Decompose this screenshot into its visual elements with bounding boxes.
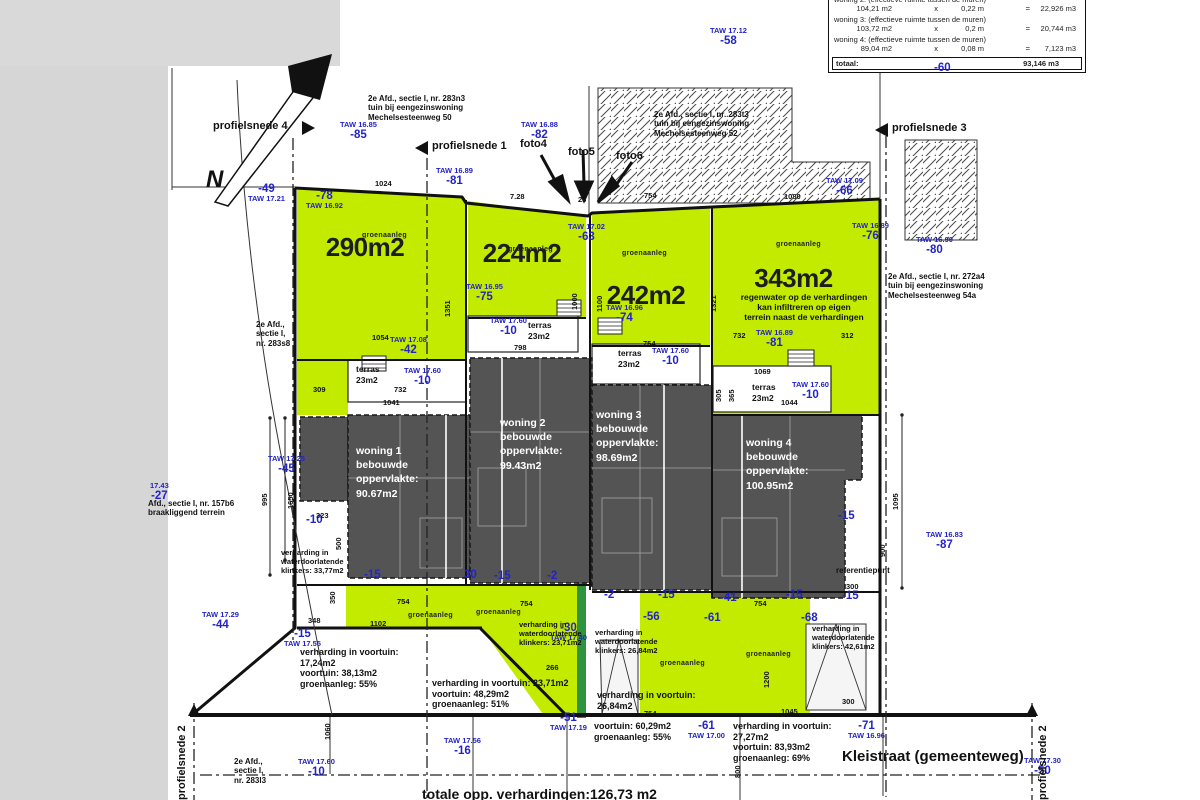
note-text: Afd., sectie I, nr. 157b6 braakliggend t… (148, 499, 276, 518)
taw-elevation-label: -71TAW 16.96 (848, 720, 885, 740)
taw-elevation-label: -78TAW 16.92 (306, 190, 343, 210)
dimension-label: 800 (733, 765, 742, 778)
dimension-label: 23 (578, 195, 586, 204)
table-row-label: woning 3: (effectieve ruimte tussen de m… (832, 14, 1082, 24)
terrace-label: terras 23m2 (528, 320, 552, 341)
terrace-label: terras 23m2 (618, 348, 642, 369)
groenaanleg-label: groenaanleg (622, 250, 667, 257)
dimension-label: 348 (308, 616, 321, 625)
taw-value: TAW 17.60 (404, 367, 441, 375)
dimension-label: 1351 (443, 300, 452, 317)
taw-elevation-label: TAW 17.56-16 (444, 737, 481, 757)
dimension-label: 754 (397, 597, 410, 606)
note-text: N (206, 166, 236, 194)
plot-area-label: 224m2 (458, 238, 586, 269)
dimension-label: 1650 (286, 492, 295, 509)
table-cell: 0,2 m (938, 24, 984, 33)
taw-elevation-label: TAW 16.95-75 (466, 283, 503, 303)
level-label: -15 (838, 510, 855, 522)
taw-elevation-label: TAW 17.12-58 (710, 27, 747, 47)
dimension-label: 300 (846, 582, 859, 591)
note-text: profielsnede 1 (432, 140, 524, 153)
table-row-label: woning 4: (effectieve ruimte tussen de m… (832, 34, 1082, 44)
dimension-label: 754 (520, 599, 533, 608)
table-cell: = (984, 44, 1030, 53)
level-value: -10 (652, 355, 689, 367)
table-row: 89,04 m2x0,08 m=7,123 m3 (832, 44, 1082, 54)
level-value: -10 (404, 375, 441, 387)
level-value: -85 (340, 129, 377, 141)
groenaanleg-label: groenaanleg (476, 609, 521, 616)
groenaanleg-label: groenaanleg (660, 660, 705, 667)
table-cell: 103,72 m2 (846, 24, 892, 33)
taw-value: TAW 16.89 (756, 329, 793, 337)
taw-value: TAW 17.08 (390, 336, 427, 344)
level-value: -10 (298, 766, 335, 778)
taw-elevation-label: TAW 17.60-10 (490, 317, 527, 337)
table-cell: 7,123 m3 (1030, 44, 1076, 53)
taw-value: TAW 17.12 (710, 27, 747, 35)
note-text: verharding in voortuin: 26,84m2 (597, 690, 715, 711)
taw-value: TAW 17.60 (792, 381, 829, 389)
level-label: -60 (934, 62, 951, 74)
dimension-label: 1024 (375, 179, 392, 188)
terrace-label: terras 23m2 (356, 364, 380, 385)
table-cell: x (892, 44, 938, 53)
note-text: referentiepunt (836, 566, 918, 575)
table-cell: 0,22 m (938, 4, 984, 13)
table-row: 103,72 m2x0,2 m=20,744 m3 (832, 24, 1082, 34)
note-text: verharding in waterdoorlatende klinkers:… (812, 625, 908, 652)
taw-value: TAW 16.83 (926, 531, 963, 539)
taw-value: TAW 17.60 (652, 347, 689, 355)
level-value: -42 (390, 344, 427, 356)
house-label: woning 2 bebouwde oppervlakte: 99.43m2 (500, 416, 610, 473)
dimension-label: 732 (733, 331, 746, 340)
taw-elevation-label: TAW 16.89-76 (852, 222, 889, 242)
level-label: -15 (842, 590, 859, 602)
dimension-label: 305 (714, 389, 723, 402)
dimension-label: 754 (644, 191, 657, 200)
dimension-label: 754 (643, 339, 656, 348)
note-text: verharding in waterdoorlatende klinkers:… (595, 629, 683, 656)
dimension-label: 1200 (762, 671, 771, 688)
table-cell: x (892, 24, 938, 33)
note-text: foto5 (568, 146, 613, 159)
table-cell: = (984, 24, 1030, 33)
level-label: -15 (786, 589, 803, 601)
dimension-label: 900 (878, 544, 887, 557)
dimension-label: 1045 (781, 707, 798, 716)
taw-elevation-label: TAW 17.60-10 (652, 347, 689, 367)
level-label: -2 (604, 589, 614, 601)
taw-elevation-label: TAW 16.83-87 (926, 531, 963, 551)
note-text: 2e Afd., sectie I, nr. 272a4 tuin bij ee… (888, 272, 1006, 300)
level-label: 30 (464, 569, 477, 581)
note-text: profielsnede 4 (213, 120, 305, 133)
house-label: woning 3 bebouwde oppervlakte: 98.69m2 (596, 408, 708, 465)
level-value: -45 (268, 463, 305, 475)
dimension-label: 309 (313, 385, 326, 394)
taw-elevation-label: TAW 17.09-66 (826, 177, 863, 197)
taw-value: TAW 16.96 (848, 732, 885, 740)
level-label: -61 (704, 612, 721, 624)
dimension-label: 1044 (781, 398, 798, 407)
taw-elevation-label: -15TAW 17.55 (284, 628, 321, 648)
table-cell: x (892, 4, 938, 13)
taw-elevation-label: TAW 17.08-42 (390, 336, 427, 356)
taw-elevation-label: TAW 17.25-45 (268, 455, 305, 475)
level-label: -2 (547, 570, 557, 582)
table-cell: 104,21 m2 (846, 4, 892, 13)
note-text: profielsnede 2 (1037, 708, 1050, 800)
note-text: 2e Afd., sectie I, nr. 283l3 (234, 757, 289, 785)
taw-elevation-label: -49TAW 17.21 (248, 183, 285, 203)
dimension-label: 365 (727, 389, 736, 402)
house-label: woning 4 bebouwde oppervlakte: 100.95m2 (746, 436, 864, 493)
plot-area-label: 290m2 (290, 232, 440, 263)
taw-elevation-label: TAW 17.60-10 (298, 758, 335, 778)
site-plan: woning 2: (effectieve ruimte tussen de m… (0, 0, 1200, 800)
dimension-label: 1102 (370, 619, 386, 628)
taw-value: TAW 17.56 (444, 737, 481, 745)
note-text: verharding in waterdoorlatende klinkers:… (281, 549, 369, 576)
dimension-label: 754 (754, 599, 767, 608)
taw-value: TAW 17.29 (202, 611, 239, 619)
dimension-label: 798 (514, 343, 527, 352)
dimension-label: 1095 (891, 493, 900, 510)
table-total-label: totaal: (836, 59, 859, 68)
plot-area-label: 242m2 (582, 280, 710, 311)
level-value: -81 (436, 175, 473, 187)
level-value: -87 (926, 539, 963, 551)
note-text: profielsnede 3 (892, 122, 984, 135)
plot-area-label: 343m2 (716, 263, 871, 294)
level-label: -56 (643, 611, 660, 623)
note-text: 2e Afd., sectie I, nr. 283t3 tuin bij ee… (654, 110, 782, 138)
note-text: verharding in voortuin: 27,27m2 voortuin… (733, 721, 851, 763)
terrace-label: terras 23m2 (752, 382, 776, 403)
dimension-label: 350 (328, 591, 337, 604)
taw-value: TAW 17.19 (550, 724, 587, 732)
taw-value: TAW 17.02 (568, 223, 605, 231)
taw-value: TAW 17.25 (268, 455, 305, 463)
note-text: 2e Afd., sectie I, nr. 283s8 (256, 320, 311, 348)
taw-value: TAW 17.60 (490, 317, 527, 325)
level-value: -58 (710, 35, 747, 47)
dimension-label: 1321 (709, 295, 718, 312)
dimension-label: 1069 (754, 367, 771, 376)
dimension-label: 1000 (570, 293, 579, 310)
dimension-label: 7.28 (510, 192, 525, 201)
level-label: -41 (720, 592, 737, 604)
groenaanleg-label: groenaanleg (746, 651, 791, 658)
dimension-label: 266 (546, 663, 559, 672)
dimension-label: 732 (394, 385, 407, 394)
dimension-label: 323 (316, 511, 329, 520)
table-cell: = (984, 4, 1030, 13)
taw-value: TAW 17.09 (826, 177, 863, 185)
taw-value: TAW 16.89 (852, 222, 889, 230)
note-text: totale opp. verhardingen:126,73 m2 (422, 786, 707, 800)
note-text: foto6 (616, 150, 661, 163)
level-value: -74 (606, 312, 643, 324)
taw-elevation-label: -51TAW 17.19 (550, 712, 587, 732)
taw-elevation-label: TAW 17.60-10 (404, 367, 441, 387)
taw-value: 17.43 (150, 482, 169, 490)
level-value: -10 (490, 325, 527, 337)
dimension-label: 300 (842, 697, 855, 706)
taw-value: TAW 17.60 (298, 758, 335, 766)
taw-value: TAW 16.92 (306, 202, 343, 210)
level-value: -81 (756, 337, 793, 349)
dimension-label: 1080 (784, 192, 801, 201)
taw-elevation-label: TAW 16.90-80 (916, 236, 953, 256)
level-value: -80 (916, 244, 953, 256)
table-total-value: 93,146 m3 (1023, 59, 1059, 68)
level-value: -44 (202, 619, 239, 631)
dimension-label: 1054 (372, 333, 389, 342)
level-value: -75 (466, 291, 503, 303)
taw-value: TAW 16.95 (466, 283, 503, 291)
taw-elevation-label: TAW 16.89-81 (436, 167, 473, 187)
table-cell: 0,08 m (938, 44, 984, 53)
house-label: woning 1 bebouwde oppervlakte: 90.67m2 (356, 444, 464, 501)
volume-table: woning 2: (effectieve ruimte tussen de m… (828, 0, 1086, 73)
table-cell: 22,926 m3 (1030, 4, 1076, 13)
taw-value: TAW 16.88 (521, 121, 558, 129)
note-text: voortuin: 60,29m2 groenaanleg: 55% (594, 721, 716, 742)
note-text: regenwater op de verhardingen kan infilt… (720, 292, 888, 322)
taw-elevation-label: TAW 16.89-81 (756, 329, 793, 349)
taw-value: TAW 16.89 (436, 167, 473, 175)
table-cell: 89,04 m2 (846, 44, 892, 53)
level-value: -66 (826, 185, 863, 197)
level-value: -76 (852, 230, 889, 242)
note-text: profielsnede 2 (176, 708, 189, 800)
volume-table-rows: woning 2: (effectieve ruimte tussen de m… (832, 0, 1082, 54)
level-label: -15 (658, 589, 675, 601)
taw-value: TAW 16.90 (916, 236, 953, 244)
groenaanleg-label: groenaanleg (408, 612, 453, 619)
taw-value: TAW 17.21 (248, 195, 285, 203)
table-cell: 20,744 m3 (1030, 24, 1076, 33)
taw-elevation-label: TAW 17.29-44 (202, 611, 239, 631)
level-label: -68 (801, 612, 818, 624)
dimension-label: 1060 (323, 723, 332, 740)
table-total-row: totaal: 93,146 m3 (832, 57, 1082, 70)
dimension-label: 1041 (383, 398, 400, 407)
table-row: 104,21 m2x0,22 m=22,926 m3 (832, 4, 1082, 14)
note-text: 2e Afd., sectie I, nr. 283n3 tuin bij ee… (368, 94, 500, 122)
level-label: -15 (494, 570, 511, 582)
groenaanleg-label: groenaanleg (776, 241, 821, 248)
level-value: -16 (444, 745, 481, 757)
taw-elevation-label: TAW 16.85-85 (340, 121, 377, 141)
note-text: foto4 (520, 138, 565, 151)
dimension-label: 312 (841, 331, 854, 340)
